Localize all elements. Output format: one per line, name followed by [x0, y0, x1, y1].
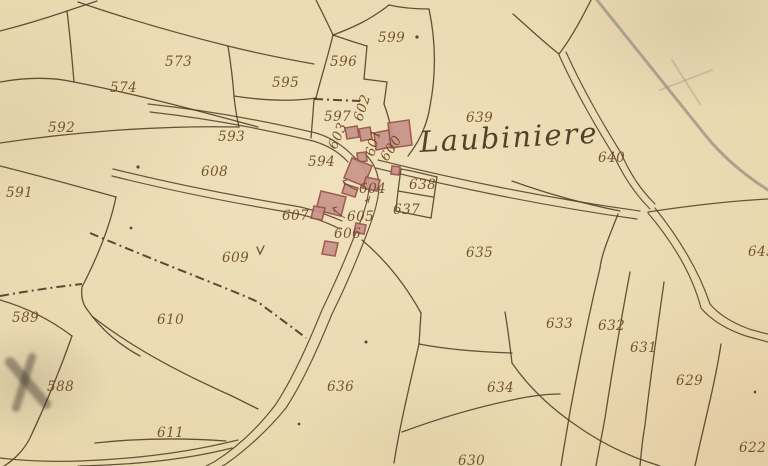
building	[391, 166, 400, 175]
building	[322, 241, 338, 256]
parcel-label-592: 592	[48, 120, 75, 136]
parcel-label-606: 606	[334, 226, 361, 242]
roads	[0, 52, 768, 466]
parcel-label-589: 589	[12, 310, 39, 326]
cadastral-map: Laubiniere 57357459259359159559659959763…	[0, 0, 768, 466]
parcel-label-604: 604	[359, 181, 386, 197]
parcel-label-630: 630	[458, 453, 485, 466]
parcel-label-633: 633	[546, 316, 573, 332]
parcel-label-645: 645	[748, 244, 768, 260]
place-name-label: Laubiniere	[418, 116, 600, 159]
parcel-label-608: 608	[201, 164, 228, 180]
parcel-label-605: 605	[347, 209, 374, 225]
parcel-label-634: 634	[487, 380, 514, 396]
parcel-label-574: 574	[110, 80, 137, 96]
parcel-label-596: 596	[330, 54, 357, 70]
parcel-labels: 5735745925935915955965995976396406085946…	[6, 30, 768, 466]
parcel-label-638: 638	[409, 177, 436, 193]
parcel-label-588: 588	[47, 379, 74, 395]
parcel-label-632: 632	[598, 318, 625, 334]
parcel-label-610: 610	[157, 312, 184, 328]
building	[311, 206, 325, 220]
parcel-label-602: 602	[351, 92, 375, 123]
parcel-label-637: 637	[393, 202, 420, 218]
parcel-label-599: 599	[378, 30, 405, 46]
parcel-label-639: 639	[466, 110, 493, 126]
parcel-label-611: 611	[157, 425, 184, 441]
parcel-label-636: 636	[327, 379, 354, 395]
parcel-label-595: 595	[272, 75, 299, 91]
parcel-label-622: 622	[739, 440, 766, 456]
building	[342, 184, 358, 197]
parcel-label-594: 594	[308, 154, 335, 170]
parcel-label-573: 573	[165, 54, 192, 70]
parcel-label-629: 629	[676, 373, 703, 389]
map-canvas: Laubiniere 57357459259359159559659959763…	[0, 0, 768, 466]
parcel-label-631: 631	[630, 340, 657, 356]
parcel-label-640: 640	[598, 150, 625, 166]
parcel-label-609: 609	[222, 250, 249, 266]
parcel-label-593: 593	[218, 129, 245, 145]
parcel-label-591: 591	[6, 185, 33, 201]
parcel-label-635: 635	[466, 245, 493, 261]
parcel-label-607: 607	[282, 208, 309, 224]
